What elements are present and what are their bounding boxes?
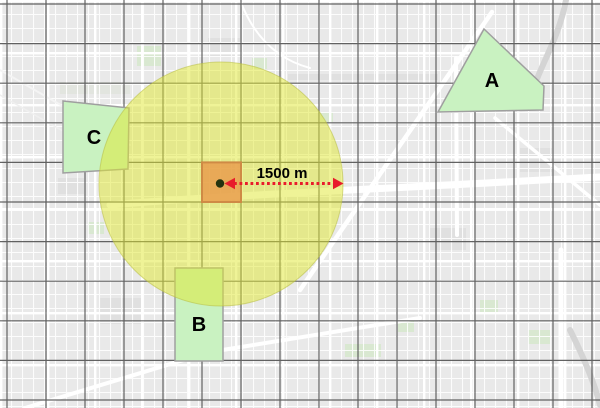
buffer-radius-label: 1500 m bbox=[257, 165, 308, 182]
map-canvas[interactable]: 1500 m A B C bbox=[0, 0, 600, 408]
zone-b-label: B bbox=[192, 314, 206, 336]
map-svg: 1500 m A B C bbox=[0, 0, 600, 408]
zone-a-label: A bbox=[485, 70, 499, 92]
zone-c-label: C bbox=[87, 127, 101, 149]
center-point[interactable] bbox=[216, 179, 224, 187]
